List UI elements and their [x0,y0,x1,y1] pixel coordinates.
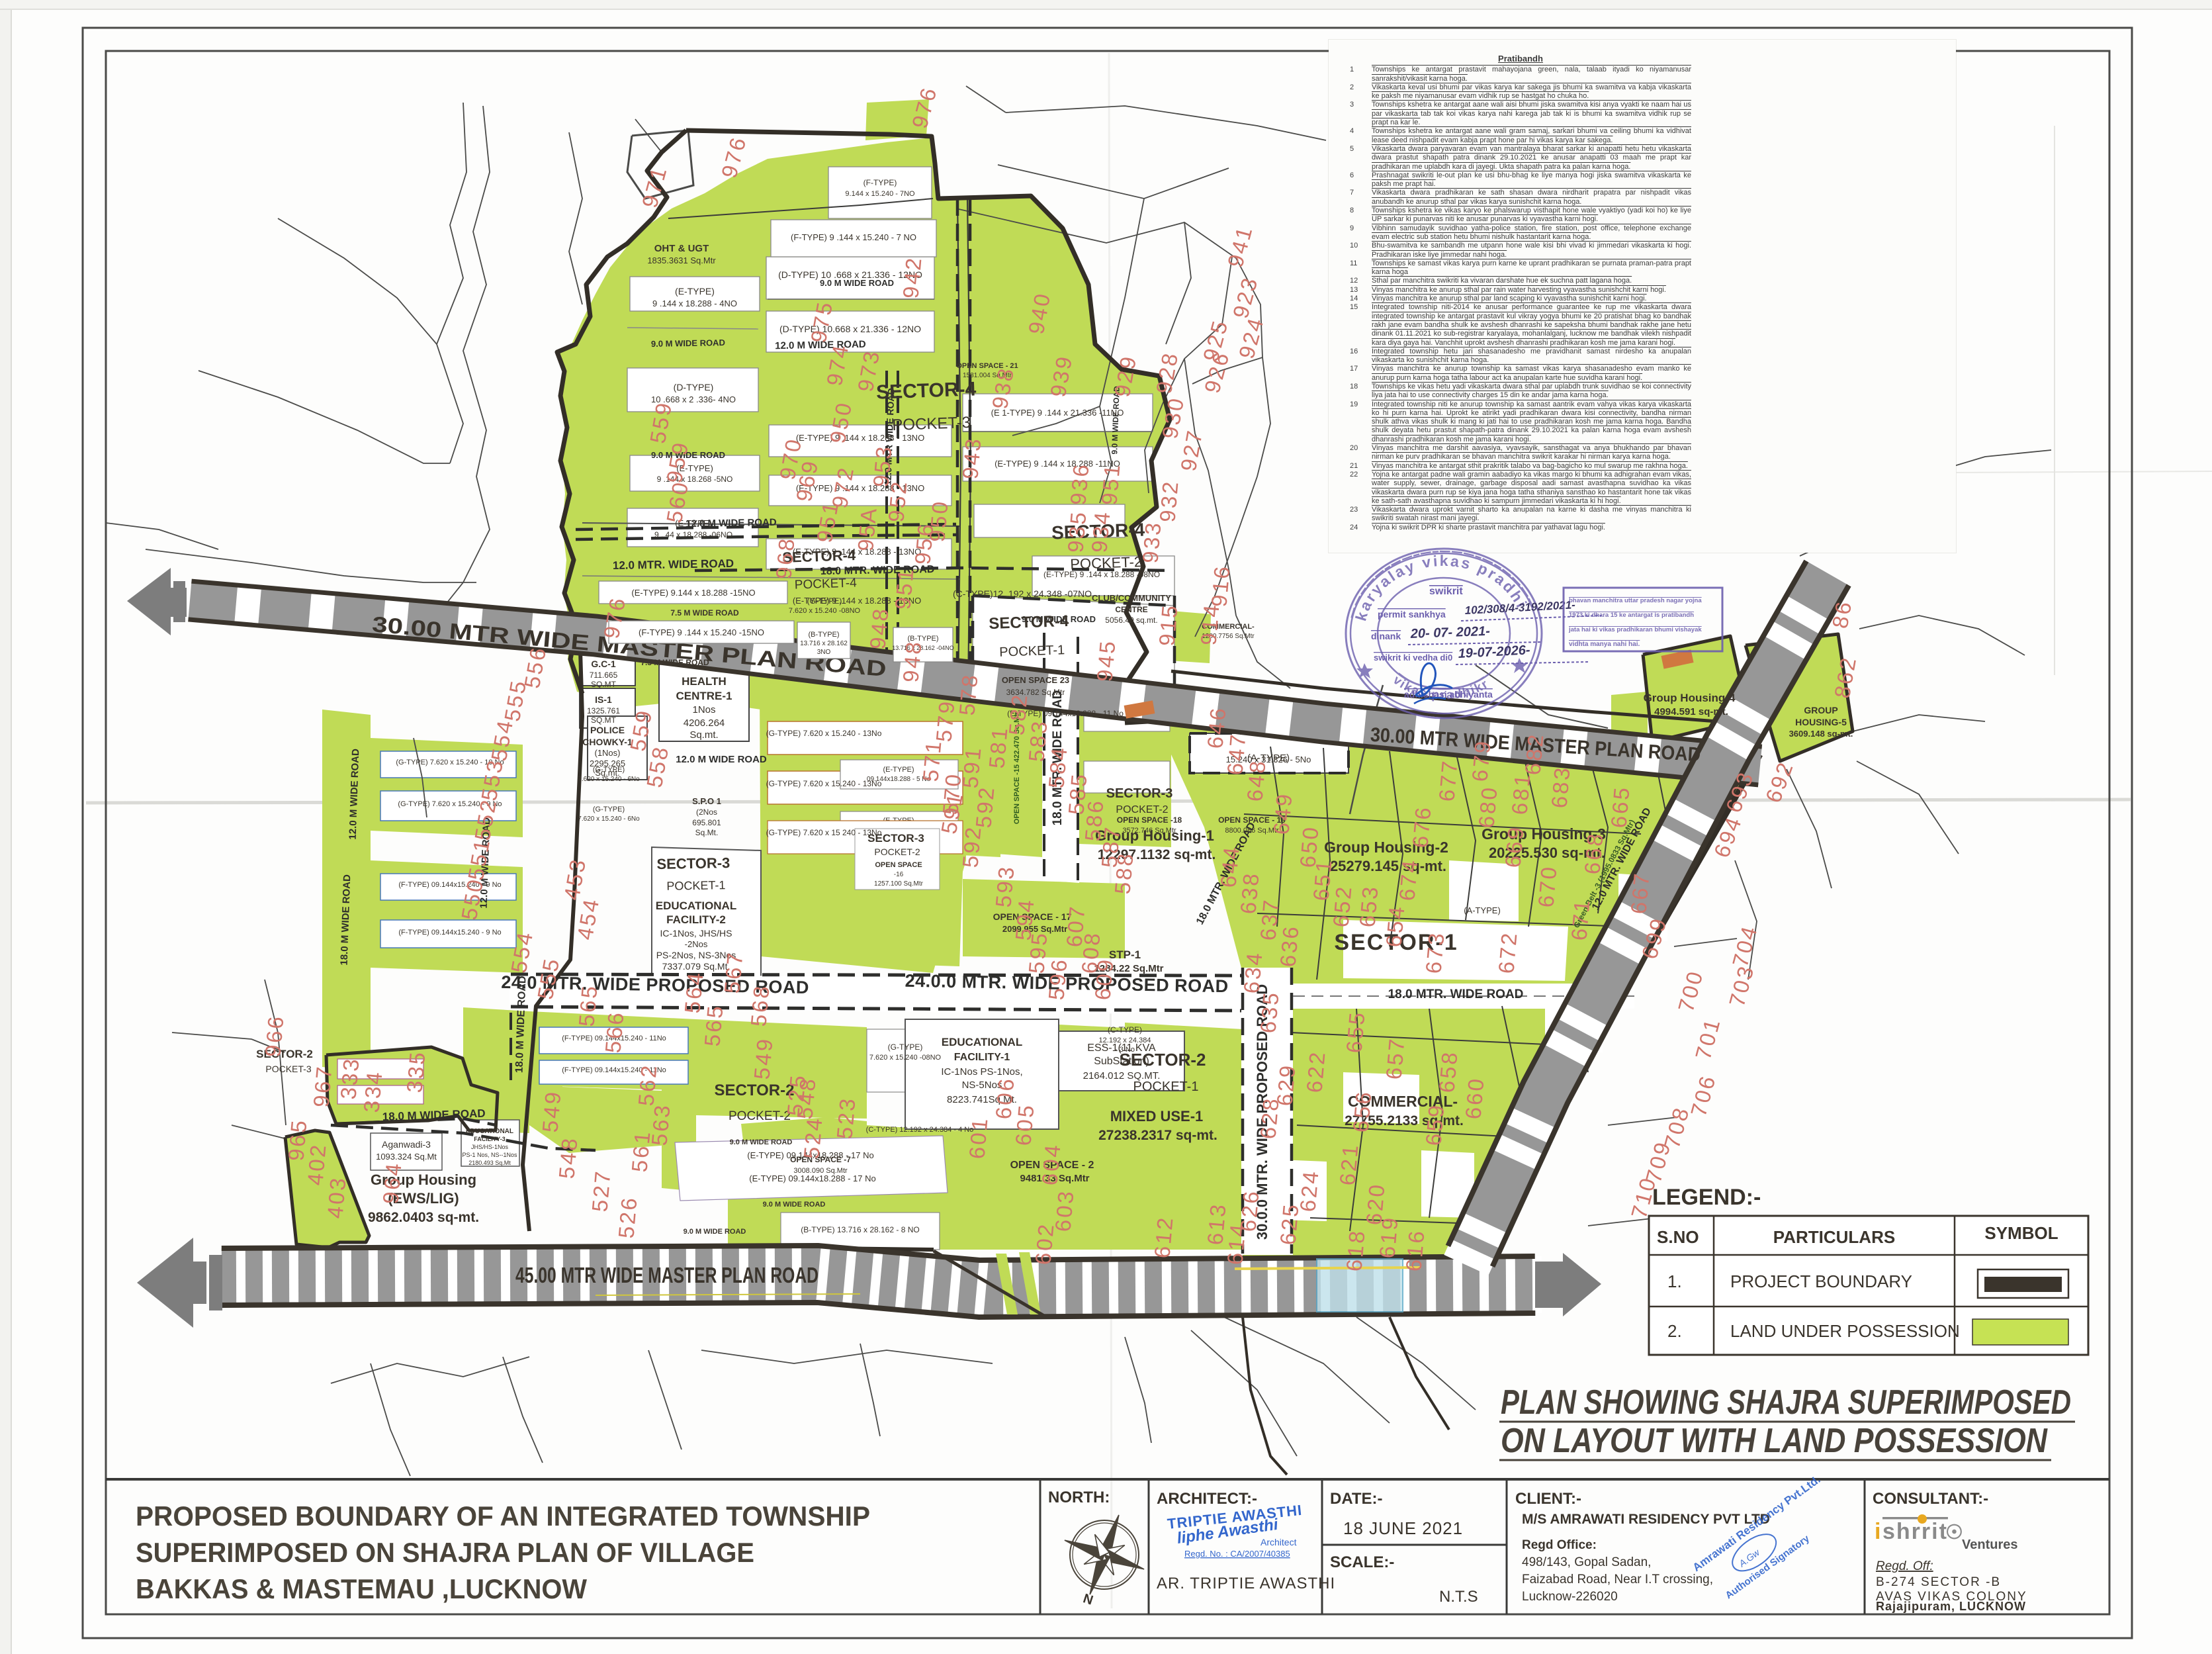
svg-text:683: 683 [1546,764,1574,809]
svg-text:12.0 M WIDE ROAD: 12.0 M WIDE ROAD [676,754,767,765]
svg-text:B-274 SECTOR -B: B-274 SECTOR -B [1876,1575,2001,1589]
svg-text:655: 655 [1341,1009,1369,1054]
svg-text:12.192 x 24.384: 12.192 x 24.384 [1099,1036,1151,1044]
svg-text:952: 952 [883,479,911,523]
svg-text:N: N [1081,1591,1095,1608]
svg-text:648: 648 [1242,758,1270,802]
svg-text:695.801: 695.801 [692,818,721,827]
svg-text:673: 673 [1421,930,1448,974]
svg-text:Architect: Architect [1261,1537,1297,1547]
svg-text:669: 669 [1500,824,1528,868]
svg-text:Ventures: Ventures [1962,1538,2017,1552]
svg-text:526: 526 [613,1195,641,1239]
svg-text:652: 652 [1328,884,1356,928]
svg-text:616: 616 [1401,1228,1429,1272]
svg-text:1257.100 Sq.Mtr: 1257.100 Sq.Mtr [874,880,924,888]
svg-text:915: 915 [1154,602,1182,647]
svg-text:SECTOR-3: SECTOR-3 [1106,786,1173,801]
svg-text:POCKET-2: POCKET-2 [1116,804,1168,815]
svg-text:700: 700 [1673,967,1708,1014]
svg-text:102/308/4-3192/2021-: 102/308/4-3192/2021- [1464,598,1575,617]
svg-text:(D-TYPE): (D-TYPE) [674,382,714,392]
svg-text:(C-TYPE): (C-TYPE) [1108,1025,1142,1034]
svg-text:964: 964 [378,1160,406,1205]
svg-text:549: 549 [537,1089,565,1133]
svg-text:SYMBOL: SYMBOL [1984,1223,2058,1243]
svg-text:(E-TYPE) 9 .144 x 18.288 -08NO: (E-TYPE) 9 .144 x 18.288 -08NO [1043,570,1160,579]
svg-text:667: 667 [1626,870,1654,915]
svg-text:658: 658 [1434,1049,1462,1093]
svg-text:(D-TYPE) 10.668 x 21.336 - 12N: (D-TYPE) 10.668 x 21.336 - 12NO [779,324,921,334]
svg-text:95A: 95A [853,506,881,553]
svg-text:FACILITY-2: FACILITY-2 [666,913,726,926]
svg-text:Aganwadi-3: Aganwadi-3 [382,1139,431,1150]
svg-text:OHT & UGT: OHT & UGT [654,243,709,254]
svg-text:S.NO: S.NO [1657,1227,1699,1247]
svg-text:1973 ki dhara 15 ke antargat i: 1973 ki dhara 15 ke antargat is pratiban… [1569,612,1694,619]
svg-text:dinank: dinank [1371,631,1401,641]
svg-text:5056.49 sq.mt.: 5056.49 sq.mt. [1105,616,1157,625]
svg-text:2164.012 SQ.MT.: 2164.012 SQ.MT. [1083,1070,1161,1081]
svg-text:527: 527 [587,1168,615,1213]
svg-text:(1Nos): (1Nos) [594,748,620,758]
svg-text:EDUCATIONAL: EDUCATIONAL [466,1128,513,1135]
svg-text:(G-TYPE) 7.620 x 15.240 - 13No: (G-TYPE) 7.620 x 15.240 - 13No [766,729,882,738]
svg-text:Sq.mt.: Sq.mt. [595,768,620,778]
svg-text:591: 591 [957,745,985,789]
svg-text:86: 86 [1828,598,1857,630]
svg-text:(E-TYPE) 09.144x18.288 - 17 No: (E-TYPE) 09.144x18.288 - 17 No [749,1173,876,1183]
svg-text:679: 679 [1467,738,1495,782]
svg-text:596: 596 [1043,956,1071,1001]
svg-text:permit sankhya: permit sankhya [1378,609,1446,620]
svg-text:525: 525 [782,1072,810,1117]
svg-text:565: 565 [574,983,601,1027]
svg-text:SECTOR-3: SECTOR-3 [656,854,730,872]
svg-text:4994.591 sq-mt.: 4994.591 sq-mt. [1654,706,1728,717]
svg-text:7.5 M WIDE ROAD: 7.5 M WIDE ROAD [641,658,709,667]
svg-text:966: 966 [260,1013,288,1058]
svg-text:S.P.O 1: S.P.O 1 [692,796,721,806]
svg-text:SQ.MT: SQ.MT [591,715,617,725]
svg-text:403: 403 [322,1175,350,1219]
svg-text:7.5 M WIDE ROAD: 7.5 M WIDE ROAD [670,608,739,618]
svg-text:657: 657 [1381,1036,1409,1080]
svg-text:682: 682 [1520,731,1548,776]
svg-text:(F-TYPE) 9 .144 x 15.240 -15NO: (F-TYPE) 9 .144 x 15.240 -15NO [639,627,764,637]
svg-text:(F-TYPE): (F-TYPE) [863,178,897,187]
svg-text:CLIENT:-: CLIENT:- [1515,1490,1581,1508]
svg-text:IC-1Nos PS-1Nos,: IC-1Nos PS-1Nos, [941,1066,1022,1078]
svg-text:(F-TYPE) 9 .144 x 15.240 - 7 N: (F-TYPE) 9 .144 x 15.240 - 7 NO [791,232,916,242]
svg-text:3NO: 3NO [817,649,831,656]
svg-text:9.144 x 15.240 - 7NO: 9.144 x 15.240 - 7NO [845,190,915,198]
svg-text:634: 634 [1239,950,1266,994]
svg-text:976: 976 [907,83,942,130]
svg-text:654: 654 [1381,903,1409,948]
svg-text:2.: 2. [1667,1321,1682,1341]
svg-text:3609.148 sq-mt.: 3609.148 sq-mt. [1789,729,1853,739]
svg-text:Lucknow-226020: Lucknow-226020 [1522,1590,1618,1604]
svg-text:POCKET-3: POCKET-3 [265,1064,311,1074]
svg-text:18 JUNE 2021: 18 JUNE 2021 [1343,1518,1463,1538]
svg-text:Rajajipuram, LUCKNOW: Rajajipuram, LUCKNOW [1876,1600,2026,1613]
svg-text:Regd. No. : CA/2007/40385: Regd. No. : CA/2007/40385 [1184,1549,1290,1559]
svg-text:(C-TYPE) 12.192 x 24.384 - 4 N: (C-TYPE) 12.192 x 24.384 - 4 No [866,1126,974,1134]
svg-text:ON LAYOUT WITH LAND POSSESSION: ON LAYOUT WITH LAND POSSESSION [1501,1422,2048,1460]
svg-text:941: 941 [1223,222,1257,269]
svg-text:SUPERIMPOSED ON SHAJRA PLAN OF: SUPERIMPOSED ON SHAJRA PLAN OF VILLAGE [136,1537,754,1568]
svg-text:(E-TYPE) 9.144 x 18.288 -15NO: (E-TYPE) 9.144 x 18.288 -15NO [631,588,755,598]
svg-text:656: 656 [1348,1089,1376,1133]
svg-text:1835.3631 Sq.Mtr: 1835.3631 Sq.Mtr [647,255,716,265]
svg-text:(G-TYPE): (G-TYPE) [593,805,625,813]
svg-text:-16: -16 [894,871,904,878]
svg-text:Regd Office:: Regd Office: [1522,1538,1597,1552]
svg-text:N.T.S: N.T.S [1439,1588,1478,1606]
svg-text:☉: ☉ [1945,1522,1963,1543]
svg-text:671: 671 [1566,897,1594,941]
svg-text:CHOWKY-1: CHOWKY-1 [582,737,633,747]
svg-text:549: 549 [749,1036,777,1080]
svg-text:498/143, Gopal Sadan,: 498/143, Gopal Sadan, [1522,1555,1651,1569]
svg-text:(C-TYPE)12 .192 x 24.348 -07NO: (C-TYPE)12 .192 x 24.348 -07NO [953,588,1092,599]
svg-text:LAND UNDER POSSESSION: LAND UNDER POSSESSION [1730,1321,1960,1341]
svg-text:628: 628 [1255,1095,1283,1140]
svg-text:9.0 M WIDE ROAD: 9.0 M WIDE ROAD [730,1138,793,1146]
svg-text:Group Housing-4: Group Housing-4 [1644,692,1736,704]
svg-text:45.00 MTR WIDE MASTER PLAN ROA: 45.00 MTR WIDE MASTER PLAN ROAD [515,1263,818,1287]
svg-text:POCKET-2: POCKET-2 [874,847,920,857]
svg-text:592: 592 [957,824,985,868]
svg-text:579: 579 [931,698,959,743]
svg-text:GROUP: GROUP [1804,705,1837,715]
svg-text:(F-TYPE) 09.144x15.240 - 9 No: (F-TYPE) 09.144x15.240 - 9 No [398,929,501,937]
svg-text:592: 592 [971,784,998,829]
svg-text:644: 644 [1216,844,1243,888]
svg-text:914: 914 [1196,602,1223,646]
svg-text:951: 951 [1096,461,1124,506]
svg-text:649: 649 [1268,791,1296,835]
svg-text:AR. TRIPTIE AWASTHI: AR. TRIPTIE AWASTHI [1157,1575,1335,1592]
svg-text:(E-TYPE) 9 .144 x 18.288 - 13N: (E-TYPE) 9 .144 x 18.288 - 13NO [796,433,924,443]
svg-text:951: 951 [890,566,918,610]
svg-text:567: 567 [719,950,747,994]
svg-text:943: 943 [957,436,985,480]
svg-text:948: 948 [865,606,893,650]
svg-text:561: 561 [627,1128,654,1173]
svg-text:677: 677 [1434,758,1462,802]
svg-text:932: 932 [1155,479,1182,523]
svg-text:566: 566 [600,1009,628,1054]
svg-text:948: 948 [898,639,926,683]
svg-text:562: 562 [633,1062,661,1107]
svg-text:LEGEND:-: LEGEND:- [1652,1185,1761,1210]
svg-text:606: 606 [991,1076,1018,1120]
svg-text:(A-TYPE): (A-TYPE) [1464,905,1501,915]
svg-text:SECTOR-4: SECTOR-4 [989,612,1069,633]
svg-text:(E-TYPE): (E-TYPE) [883,766,914,774]
svg-text:665: 665 [1606,784,1634,829]
svg-text:Faizabad Road, Near I.T crossi: Faizabad Road, Near I.T crossing, [1522,1573,1713,1586]
svg-text:967: 967 [308,1064,336,1108]
svg-text:CENTRE: CENTRE [1115,605,1147,614]
svg-text:454: 454 [572,896,604,942]
svg-text:660: 660 [1460,1076,1488,1120]
svg-text:968: 968 [771,535,799,580]
svg-text:(B-TYPE) 13.716 x 28.162 - 8 N: (B-TYPE) 13.716 x 28.162 - 8 NO [801,1225,919,1234]
svg-text:7337.079 Sq.Mt.: 7337.079 Sq.Mt. [662,961,730,972]
svg-text:SECTOR-4: SECTOR-4 [876,378,977,403]
svg-text:942: 942 [898,255,926,299]
svg-text:OPEN SPACE 23: OPEN SPACE 23 [1002,675,1069,685]
svg-text:HEALTH: HEALTH [682,675,727,688]
svg-text:601: 601 [964,1115,992,1160]
svg-text:JHS/HS-1Nos: JHS/HS-1Nos [471,1144,509,1150]
svg-text:3572.746 Sq.Mtr: 3572.746 Sq.Mtr [1122,827,1176,835]
svg-text:CENTRE-1: CENTRE-1 [676,690,732,702]
svg-text:621: 621 [1335,1142,1362,1186]
svg-text:-2Nos: -2Nos [685,939,708,949]
svg-text:SubStation): SubStation) [1094,1056,1149,1067]
svg-text:IS-1: IS-1 [595,694,612,705]
svg-text:NORTH:: NORTH: [1048,1489,1110,1506]
svg-text:- 3 No: - 3 No [1115,1046,1135,1054]
svg-text:2180.493 Sq.Mt: 2180.493 Sq.Mt [468,1160,511,1166]
svg-text:PARTICULARS: PARTICULARS [1773,1227,1895,1247]
svg-text:(G-TYPE): (G-TYPE) [888,1042,923,1052]
svg-text:POLICE: POLICE [590,725,625,735]
svg-text:POCKET-1: POCKET-1 [1133,1080,1199,1094]
svg-text:(B-TYPE): (B-TYPE) [808,631,839,639]
svg-text:CONSULTANT:-: CONSULTANT:- [1873,1490,1988,1508]
svg-text:681: 681 [1507,771,1534,815]
svg-text:4206.264: 4206.264 [684,717,725,729]
svg-text:25279.145 sq-mt.: 25279.145 sq-mt. [1330,858,1446,874]
svg-text:604: 604 [1037,1142,1065,1186]
svg-text:vidhta manya nahi hai.: vidhta manya nahi hai. [1569,641,1640,648]
svg-text:PROPOSED BOUNDARY OF AN INTEG: PROPOSED BOUNDARY OF AN INTEGRATED TOWNS… [136,1500,870,1532]
svg-text:7.620 x 15.240 - 6No: 7.620 x 15.240 - 6No [578,815,640,823]
svg-text:916: 916 [1206,563,1234,608]
svg-text:PS-1 Nos, NS--1Nos: PS-1 Nos, NS--1Nos [462,1152,517,1158]
svg-text:588: 588 [1110,850,1137,895]
svg-text:672: 672 [1493,930,1521,974]
svg-text:7.620 x 15.240 -08NO: 7.620 x 15.240 -08NO [869,1054,942,1062]
svg-text:2295.265: 2295.265 [590,758,625,768]
svg-text:578: 578 [954,672,982,716]
svg-text:(2Nos: (2Nos [696,807,717,817]
svg-text:20- 07- 2021-: 20- 07- 2021- [1409,624,1490,641]
svg-text:613: 613 [1202,1201,1230,1246]
svg-text:i: i [1875,1519,1880,1544]
svg-text:POCKET-2: POCKET-2 [729,1109,791,1123]
svg-text:936: 936 [1065,461,1093,506]
svg-text:(E-TYPE): (E-TYPE) [675,286,715,297]
svg-text:shrrit: shrrit [1882,1519,1948,1544]
svg-text:1325.761: 1325.761 [587,706,620,715]
svg-text:swikrit ki vedha di0: swikrit ki vedha di0 [1374,653,1452,663]
svg-text:555: 555 [500,677,531,723]
svg-text:568: 568 [746,983,774,1027]
svg-text:(G-TYPE) 7.620 x 15 240 - 13No: (G-TYPE) 7.620 x 15 240 - 13No [766,828,882,837]
svg-text:POCKET-1: POCKET-1 [999,643,1065,659]
svg-text:1.: 1. [1667,1271,1682,1291]
svg-text:PLAN SHOWING SHAJRA SUPERIMPOS: PLAN SHOWING SHAJRA SUPERIMPOSED [1501,1383,2071,1422]
svg-text:680: 680 [1474,784,1501,829]
svg-text:SECTOR-2: SECTOR-2 [715,1081,795,1099]
svg-text:453: 453 [559,856,591,902]
svg-text:BAKKAS & MASTEMAU ,LUCKNOW: BAKKAS & MASTEMAU ,LUCKNOW [136,1573,587,1604]
svg-text:612: 612 [1149,1215,1177,1259]
svg-text:704: 704 [1728,922,1762,969]
svg-text:CLUB/COMMUNITY: CLUB/COMMUNITY [1092,593,1171,603]
svg-text:674: 674 [1394,857,1422,901]
svg-text:12.0 MTR. WIDE ROAD: 12.0 MTR. WIDE ROAD [613,557,734,572]
svg-text:M/S AMRAWATI RESIDENCY PVT LTD: M/S AMRAWATI RESIDENCY PVT LTD [1522,1512,1770,1527]
svg-text:703: 703 [1724,962,1759,1009]
svg-text:9.0 M WIDE ROAD: 9.0 M WIDE ROAD [763,1201,826,1209]
svg-text:971: 971 [637,163,672,210]
svg-text:POCKET-3: POCKET-3 [892,414,971,434]
svg-text:335: 335 [402,1049,429,1093]
svg-text:668: 668 [1579,831,1607,875]
svg-text:523: 523 [832,1095,860,1140]
svg-text:FACILITY-1: FACILITY-1 [954,1052,1010,1063]
svg-text:swikrit: swikrit [1429,586,1463,597]
svg-text:POCKET-1: POCKET-1 [666,878,725,893]
svg-text:EDUCATIONAL: EDUCATIONAL [942,1036,1022,1048]
svg-text:OPEN SPACE: OPEN SPACE [875,861,922,869]
svg-text:(G-TYPE): (G-TYPE) [807,596,842,606]
svg-text:9.0 M WIDE ROAD: 9.0 M WIDE ROAD [684,1228,746,1236]
svg-text:924: 924 [1234,314,1268,361]
svg-text:524: 524 [799,1115,826,1160]
svg-text:POCKET-4: POCKET-4 [794,576,857,592]
svg-text:701: 701 [1691,1015,1725,1062]
svg-text:625: 625 [1275,1201,1303,1246]
svg-text:945: 945 [1092,638,1120,682]
svg-text:18.0 MTR. WIDE ROAD: 18.0 MTR. WIDE ROAD [1388,988,1524,1001]
svg-text:9 . 44 x 18.288 -06NO: 9 . 44 x 18.288 -06NO [654,530,732,539]
svg-text:27238.2317 sq-mt.: 27238.2317 sq-mt. [1098,1128,1217,1143]
svg-text:SQ.MT: SQ.MT [591,680,617,689]
svg-text:7.620 x 15.240 -08NO: 7.620 x 15.240 -08NO [789,607,861,615]
svg-text:Regd. Off:: Regd. Off: [1876,1559,1933,1573]
svg-text:711.665: 711.665 [590,670,618,680]
svg-text:565: 565 [699,1003,727,1047]
svg-text:950: 950 [924,498,952,543]
svg-text:IC-1Nos, JHS/HS: IC-1Nos, JHS/HS [660,928,732,939]
svg-text:333: 333 [335,1056,363,1100]
svg-text:676: 676 [1407,804,1435,849]
svg-text:19-07-2026-: 19-07-2026- [1458,643,1530,661]
svg-text:ARCHITECT:-: ARCHITECT:- [1157,1490,1257,1508]
svg-text:928: 928 [1151,349,1183,396]
svg-text:1Nos: 1Nos [692,704,715,715]
svg-text:G.C-1: G.C-1 [591,659,616,669]
svg-text:13.716 x 28.162: 13.716 x 28.162 [800,640,848,647]
svg-text:OPEN SPACE -18: OPEN SPACE -18 [1117,815,1182,825]
svg-text:Sq.mt.: Sq.mt. [689,729,718,741]
svg-text:9 .144 x 18.288 - 4NO: 9 .144 x 18.288 - 4NO [652,299,737,308]
svg-text:334: 334 [359,1069,386,1113]
svg-text:622: 622 [1302,1049,1329,1093]
svg-text:670: 670 [1533,864,1561,908]
svg-text:933: 933 [1137,520,1165,564]
svg-text:923: 923 [1228,273,1262,320]
svg-text:HOUSING-5: HOUSING-5 [1795,717,1847,727]
svg-text:(G-TYPE) 7.620 x 15.240 - 13No: (G-TYPE) 7.620 x 15.240 - 13No [766,779,882,788]
svg-text:603: 603 [1050,1188,1078,1232]
svg-text:934: 934 [1086,509,1114,553]
svg-text:9862.0403 sq-mt.: 9862.0403 sq-mt. [368,1210,479,1225]
svg-text:FACILITY-3: FACILITY-3 [474,1136,506,1142]
svg-text:SCALE:-: SCALE:- [1330,1553,1394,1571]
svg-text:EDUCATIONAL: EDUCATIONAL [656,899,736,912]
svg-text:PROJECT BOUNDARY: PROJECT BOUNDARY [1730,1271,1912,1291]
svg-text:bhavan manchitra uttar pradesh: bhavan manchitra uttar pradesh nagar yoj… [1569,597,1702,604]
svg-text:MIXED USE-1: MIXED USE-1 [1110,1108,1204,1125]
svg-text:1093.324 Sq.Mt: 1093.324 Sq.Mt [376,1152,437,1162]
svg-text:619: 619 [1374,1215,1402,1259]
svg-text:659: 659 [1421,1102,1448,1146]
svg-text:609: 609 [1090,956,1118,1001]
svg-text:635: 635 [1255,989,1283,1034]
svg-text:DATE:-: DATE:- [1330,1490,1383,1508]
svg-text:Sq.Mt.: Sq.Mt. [695,828,719,837]
svg-text:9.0 M WIDE ROAD: 9.0 M WIDE ROAD [651,338,725,349]
svg-text:jata hai ki vikas pradhikaran: jata hai ki vikas pradhikaran bhumi vish… [1568,626,1702,633]
svg-text:548: 548 [554,1135,582,1179]
svg-text:653: 653 [1354,884,1382,928]
svg-text:618: 618 [1341,1228,1369,1272]
